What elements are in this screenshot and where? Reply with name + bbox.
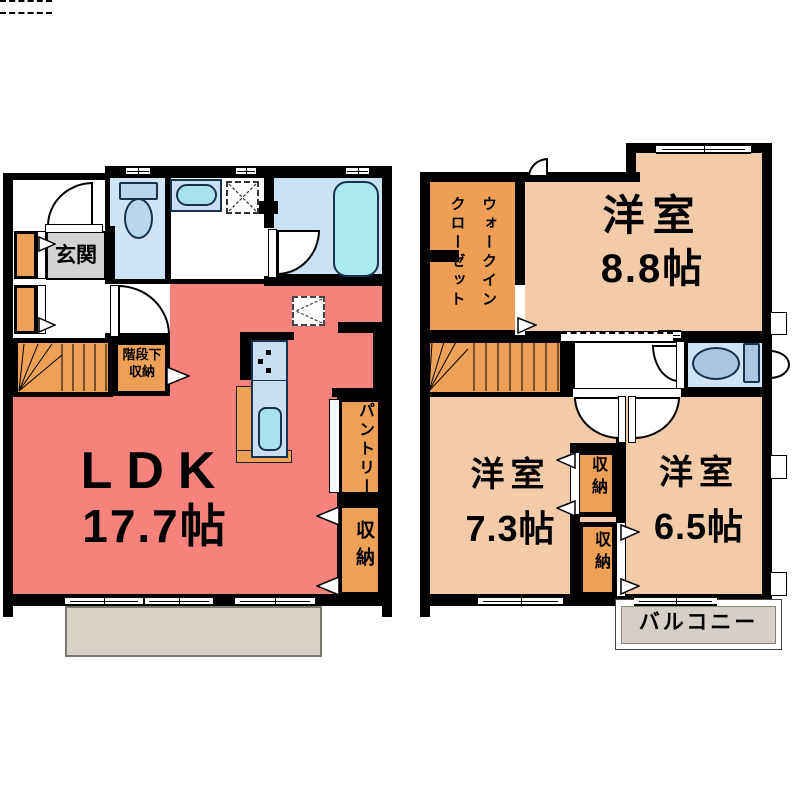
floorplan-canvas: 玄関 階段下収納 LDK 17.7帖 パントリー 収納	[0, 0, 800, 800]
window	[634, 596, 717, 606]
bedroom-65-size-label: 6.5帖	[620, 508, 778, 546]
toilet-window-bump	[770, 350, 790, 379]
small-door-arc-icon	[528, 158, 548, 177]
wall	[572, 443, 620, 452]
bedroom-73-door-leaf	[618, 396, 626, 443]
bedroom-88-name-label: 洋室	[540, 194, 765, 238]
window-bump	[770, 312, 787, 335]
bedroom-73-size-label: 7.3帖	[418, 510, 603, 548]
bedroom-65-name-label: 洋室	[625, 456, 773, 492]
window	[478, 596, 563, 606]
window-bump	[770, 572, 787, 596]
toilet-2f-door-leaf	[676, 341, 685, 389]
second-floor-plan: ウォークインクローゼット 洋室 8.8帖 洋室 7.3帖 洋室 6.5帖 収納 …	[0, 0, 800, 800]
wall	[420, 172, 430, 617]
balcony-label: バルコニー	[621, 612, 776, 634]
toilet-bowl-icon	[692, 347, 740, 380]
stairs-2f	[423, 336, 565, 397]
closet-b-label: 収納	[588, 531, 612, 589]
window-over-stairwell	[561, 332, 673, 343]
wic-door-arrow-icon	[517, 317, 537, 334]
closet-b-door-arrow-icon	[620, 578, 640, 595]
stairs-2f-treads	[428, 341, 560, 392]
bedroom-88-size-label: 8.8帖	[540, 248, 765, 290]
walk-in-closet-label: ウォークインクローゼット	[440, 196, 504, 314]
bedroom-65-door-leaf	[628, 396, 636, 443]
bedroom-73-name-label: 洋室	[423, 458, 598, 494]
closet-a-label: 収納	[585, 456, 609, 514]
toilet-tank-icon	[743, 343, 760, 383]
hall-door-opening	[573, 389, 681, 397]
window	[656, 144, 751, 154]
